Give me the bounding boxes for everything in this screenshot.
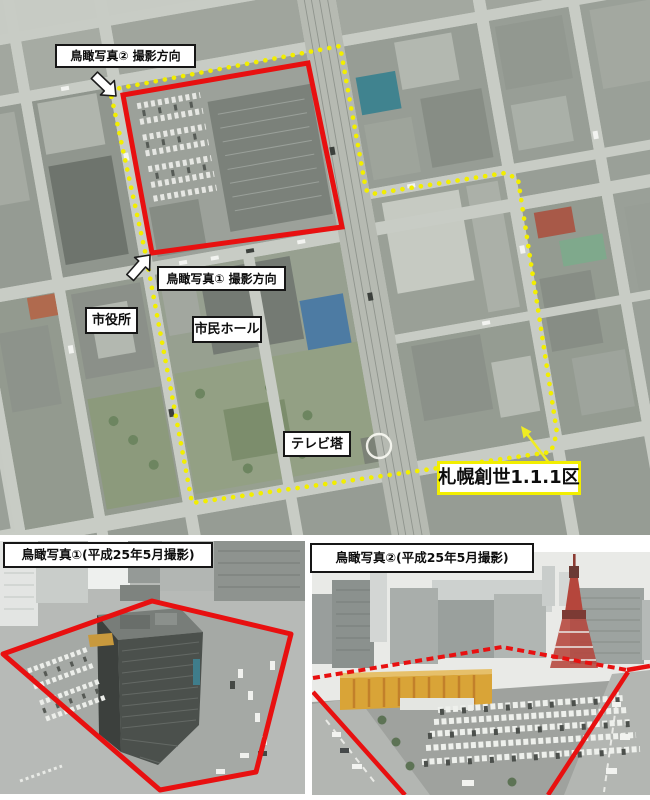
photo2-caption: 鳥瞰写真②(平成25年5月撮影) xyxy=(310,543,534,573)
photo2-image xyxy=(312,552,650,795)
label-city-hall: 市役所 xyxy=(85,307,138,334)
yellow-building xyxy=(340,669,492,710)
label-district-name: 札幌創世1.1.1区 xyxy=(437,461,581,495)
label-photo2-direction: 鳥瞰写真② 撮影方向 xyxy=(55,44,196,68)
photo1-caption: 鳥瞰写真①(平成25年5月撮影) xyxy=(3,542,213,568)
label-tv-tower: テレビ塔 xyxy=(283,431,351,457)
photo1-image xyxy=(0,541,305,794)
label-civic-hall: 市民ホール xyxy=(192,316,262,343)
figure: 鳥瞰写真② 撮影方向 鳥瞰写真① 撮影方向 市役所 市民ホール テレビ塔 札幌創… xyxy=(0,0,650,800)
label-photo1-direction: 鳥瞰写真① 撮影方向 xyxy=(157,266,286,291)
